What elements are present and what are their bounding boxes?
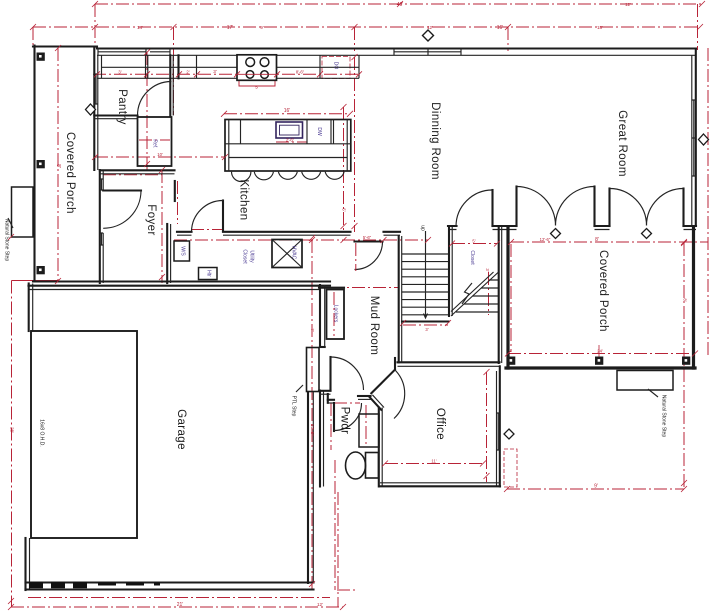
- svg-text:14': 14': [137, 25, 143, 30]
- svg-text:W/S: W/S: [180, 246, 186, 256]
- svg-text:Closet: Closet: [469, 250, 475, 265]
- svg-text:9': 9': [594, 484, 598, 490]
- svg-text:16': 16': [284, 108, 291, 114]
- svg-text:Covered Porch: Covered Porch: [64, 132, 76, 214]
- svg-text:Natural Stone Step: Natural Stone Step: [661, 395, 667, 437]
- svg-text:21': 21': [177, 602, 184, 608]
- svg-text:Closet: Closet: [242, 249, 248, 264]
- svg-text:Dinning Room: Dinning Room: [429, 102, 441, 180]
- svg-text:18': 18': [597, 25, 603, 30]
- svg-text:up: up: [420, 225, 426, 231]
- svg-text:23'-6": 23'-6": [310, 424, 315, 436]
- svg-text:DW: DW: [316, 127, 322, 136]
- svg-text:Great Room: Great Room: [616, 110, 628, 177]
- svg-text:16x8 O.H.D.: 16x8 O.H.D.: [39, 419, 45, 447]
- svg-text:7': 7': [310, 328, 315, 331]
- svg-text:Utility: Utility: [249, 250, 255, 263]
- svg-text:3': 3': [425, 327, 428, 332]
- svg-text:8'-6": 8'-6": [296, 69, 305, 74]
- svg-text:12'-6": 12'-6": [540, 237, 551, 242]
- svg-text:40': 40': [397, 2, 404, 8]
- svg-text:Garage: Garage: [175, 409, 187, 450]
- svg-text:17': 17': [227, 25, 234, 31]
- svg-text:2'-6": 2'-6": [286, 138, 295, 143]
- svg-text:Pwdr: Pwdr: [339, 407, 351, 435]
- svg-text:8': 8': [683, 298, 688, 301]
- svg-text:11': 11': [431, 458, 436, 463]
- svg-text:Covered Porch: Covered Porch: [597, 250, 609, 332]
- svg-text:Kitchen: Kitchen: [238, 179, 250, 220]
- svg-text:5': 5': [342, 208, 347, 211]
- svg-text:16': 16': [497, 25, 504, 31]
- svg-text:12': 12': [427, 25, 433, 30]
- svg-text:10': 10': [157, 152, 163, 157]
- svg-text:Ref.: Ref.: [152, 139, 158, 148]
- svg-text:Lockers: Lockers: [333, 305, 339, 323]
- svg-text:8': 8': [55, 164, 61, 168]
- svg-text:12': 12': [317, 602, 323, 607]
- svg-text:9': 9': [260, 25, 264, 30]
- svg-text:DO: DO: [333, 62, 339, 70]
- svg-text:5': 5': [255, 85, 259, 90]
- svg-text:HVAC: HVAC: [291, 246, 297, 260]
- svg-text:3': 3': [485, 268, 490, 271]
- svg-text:24': 24': [597, 348, 603, 353]
- svg-text:Office: Office: [434, 408, 446, 440]
- svg-text:3': 3': [213, 69, 217, 74]
- svg-text:12': 12': [625, 2, 631, 7]
- svg-text:2': 2': [186, 69, 189, 74]
- svg-text:Natural Stone Step: Natural Stone Step: [4, 219, 10, 261]
- svg-text:Mud Room: Mud Room: [368, 296, 380, 355]
- svg-text:28': 28': [10, 427, 15, 433]
- svg-text:5'-6": 5'-6": [363, 235, 372, 240]
- svg-text:PTL Step: PTL Step: [291, 396, 297, 417]
- svg-text:Foyer: Foyer: [145, 204, 157, 235]
- svg-text:Htr: Htr: [206, 270, 212, 277]
- svg-text:Pantry: Pantry: [116, 89, 128, 125]
- svg-text:5': 5': [472, 239, 475, 244]
- svg-text:3': 3': [118, 69, 121, 74]
- svg-text:8': 8': [595, 237, 599, 243]
